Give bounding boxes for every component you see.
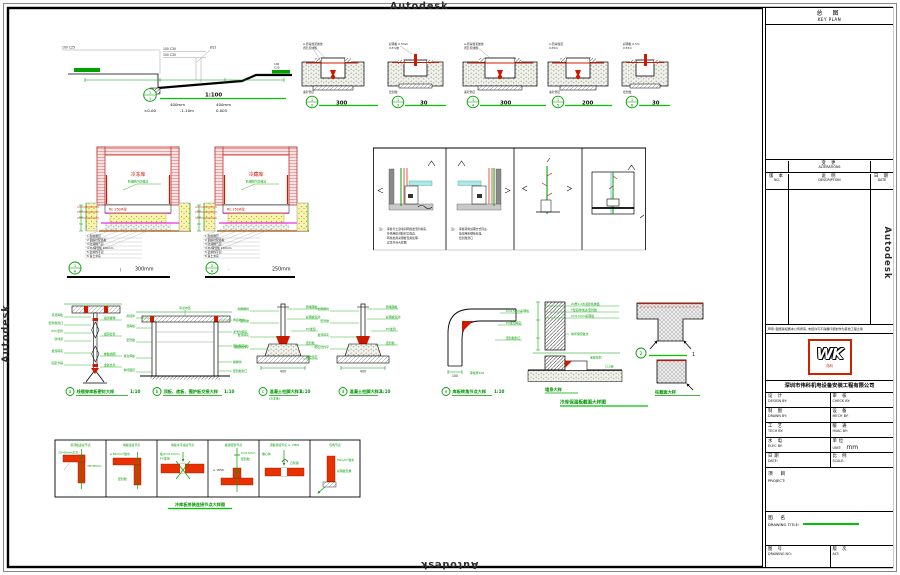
annotation: 防潮隔汽层做法 xyxy=(246,178,266,183)
grid-row: 制 图DRAWN BY: 设 备MECH BY: xyxy=(766,408,893,423)
annotation: δ=0.5mm彩钢板 xyxy=(571,313,594,318)
annotation: 吊挂件 xyxy=(126,313,135,318)
company-name: 深圳市伟科机电设备安装工程有限公司 xyxy=(766,381,893,393)
cell-header: 吊顶板连接节点 xyxy=(70,442,90,447)
detail-caption: 墙身大样 xyxy=(545,386,563,393)
section-marker-side: 1 xyxy=(692,352,695,358)
annotation: 踢脚线 xyxy=(233,359,242,364)
scale-label: 30 xyxy=(652,101,660,107)
alterations-desc-cell xyxy=(789,190,870,324)
watermark-left: Autodesk xyxy=(1,304,12,364)
section-marker: 2 xyxy=(640,351,643,357)
annotation: 地脚螺栓 xyxy=(237,306,249,311)
drawing-sheet: 100 C25 100 C30 100 C30 Ø12 100 C20 1 1 … xyxy=(0,0,900,575)
detail-caption: 混凝土柱脚大样1 xyxy=(270,388,302,395)
annotation: 密封胶 xyxy=(389,90,398,94)
annotation: δ=0.5mm彩钢板 xyxy=(506,308,529,313)
dimension: 250mm xyxy=(272,267,291,273)
cold-room-section-1: 冷冻库 防潮隔汽层做法 RC 250#砼 1 耐磨面层 2 钢筋砼配筋板 3 防… xyxy=(67,147,191,277)
detail-caption: 混凝土柱脚大样2 xyxy=(350,388,382,395)
company-logo: WK 伟科 xyxy=(808,339,852,375)
annotation: 0.55m xyxy=(623,46,632,50)
alt-no-en: ALT: xyxy=(833,552,892,556)
date-en: DATE xyxy=(871,179,893,183)
label-en: SCALE: xyxy=(833,459,892,463)
annotation: 细石砼找平 xyxy=(235,344,250,349)
detail-bubble: 2 xyxy=(311,103,313,107)
title-block-inner: 总 图 KEY PLAN 变 更 ALTERATIONS 版 本 NO. 说 明… xyxy=(765,8,893,567)
drawing-title-cell: 图 名 DRAWING TITLE: xyxy=(766,512,893,546)
detail-caption: 柱截面大样 xyxy=(655,389,677,396)
scale-label: 300 xyxy=(500,101,512,107)
drawing-no-en: DRAWING NO: xyxy=(768,552,828,556)
copyright-notice: 声明: 图纸版权属本公司所有, 未经许可不得翻印复制作为其他工程之用 xyxy=(766,325,893,334)
keyplan-title-cn: 总 图 xyxy=(766,10,893,17)
level: -1.10m xyxy=(180,108,194,113)
alterations-header: 变 更 ALTERATIONS xyxy=(766,160,893,173)
col-no: 版 本 NO. xyxy=(766,174,789,189)
detail-bubble: 1 xyxy=(397,98,399,102)
detail-caption: 库板转角节点大样 xyxy=(453,388,487,395)
annotation: 密封胶 xyxy=(623,90,632,94)
annotation: 彩钢板包边 xyxy=(386,314,401,319)
logo-text: WK xyxy=(816,347,842,362)
detail-e-panel-corner: δ=0.5mm彩钢板 PU发泡填实 密封胶封口 100 库板厚100 e 库板转… xyxy=(442,308,529,396)
annotation: 顶库板 xyxy=(126,323,135,328)
detail-caption: 线缆穿库板密封大样 xyxy=(77,388,116,395)
no-en: NO. xyxy=(766,179,788,183)
detail-scale: 1:10 xyxy=(380,389,391,394)
annotation: 素砼垫层 xyxy=(590,355,602,360)
trench-detail-1: A-沥青胶泥嵌缝 闭孔泡沫板 素砼垫层 1 2 300 xyxy=(302,42,378,108)
wall-section-detail: 20厚1:2水泥砂浆抹面 T型铝材收边/密封胶 δ=0.5mm彩钢板 地坪保温做… xyxy=(528,301,622,393)
annotation: 0.5%坡 xyxy=(389,46,399,50)
annotation: 板(δ=0.5mm) xyxy=(160,451,180,456)
col-description: 说 明 DESCRIPTION xyxy=(789,174,870,189)
annotation: 防潮隔汽层做法 xyxy=(128,178,148,183)
annotation: ø 50m/m²胶水 xyxy=(110,451,130,456)
trench-detail-4: A-沥青胶泥 0.55m 素砼垫层 1 5 200 xyxy=(548,42,612,108)
tech-by-cell: 工 艺TECH BY: xyxy=(766,423,830,437)
layer-note: 6 素土夯实 xyxy=(87,254,101,258)
label-en: UNIT: xyxy=(833,446,842,450)
annotation: 库板厚100 xyxy=(470,370,484,375)
alterations-column-heads: 版 本 NO. 说 明 DESCRIPTION 日 期 DATE xyxy=(766,173,893,190)
detail-bubble: 1 xyxy=(149,91,151,95)
detail-letter: d xyxy=(342,389,345,394)
unit-cell: 单位UNIT:mm xyxy=(830,438,894,452)
date-cell: 日期DATE: xyxy=(766,453,830,467)
annotation: 墙身库板 xyxy=(123,353,135,358)
annotation: 密封胶 xyxy=(306,340,315,345)
level: 0.005 xyxy=(216,108,228,113)
check-by-cell: 审 核CHECK BY: xyxy=(830,393,894,407)
annotation: 地坪面层 xyxy=(123,367,135,372)
annotation: 锁紧螺母 xyxy=(104,315,116,320)
trench-detail-3: A-沥青胶泥嵌缝 闭孔泡沫板 素砼垫层 1 4 300 xyxy=(463,42,546,108)
elec-by-cell: 水 电ELEC BY: xyxy=(766,438,830,452)
ramp-section-detail: 100 C25 100 C30 100 C30 Ø12 100 C20 1 1 … xyxy=(62,45,292,114)
note-line: 转角处用彩钢板包角处理, xyxy=(387,236,419,240)
company-logo-row: WK 伟科 xyxy=(766,334,893,381)
label-en: DESIGN BY: xyxy=(768,399,828,403)
grid-row: 工 艺TECH BY: 暖 通HVAC BY: xyxy=(766,423,893,438)
col-date: 日 期 DATE xyxy=(870,174,893,189)
detail-bubble: 1 xyxy=(311,98,313,102)
annotation: 穿线束 xyxy=(54,336,63,341)
alterations-rows xyxy=(766,190,893,325)
annotation: C20 xyxy=(274,66,280,70)
annotation: 密封胶封口 xyxy=(506,335,521,340)
project-cell: 项 目 PROJECT: xyxy=(766,468,893,512)
annotation: 密封胶封口 xyxy=(49,320,64,325)
wall-junction-panels: 注: 库板与土建墙间隙用发泡剂填实, 外侧用密封胶封口收边, 转角处用彩钢板包角… xyxy=(373,148,646,250)
trench-detail-5: 彩钢板 0.5m 0.55m 密封胶 1 6 30 xyxy=(622,42,670,108)
dimension: 400 xyxy=(360,370,366,374)
grid-row: 日期DATE: 比 例SCALE: xyxy=(766,453,893,468)
label-en: HVAC BY: xyxy=(833,429,892,433)
room-name: 冷冻库 xyxy=(130,171,145,178)
dimension: 400mm xyxy=(216,102,231,107)
annotation: Ø12 xyxy=(210,45,216,50)
level: ±0.00 xyxy=(144,108,156,113)
annotation: 地坪保温做法 xyxy=(571,331,588,336)
alterations-header-left xyxy=(766,161,789,172)
project-cn: 项 目 xyxy=(768,470,891,477)
keyplan-header: 总 图 KEY PLAN xyxy=(766,8,893,25)
annotation: 38*38mm xyxy=(87,464,102,468)
annotation: 密封胶 xyxy=(118,476,127,481)
annotation: 发泡填实 xyxy=(317,332,329,337)
detail-b-panel-junction: 吊挂件 顶库板 密封胶 墙身库板 地坪面层 角铝收边 发泡剂填实 聚氨酯芯材 踢… xyxy=(123,305,247,396)
annotation: 100 C30 xyxy=(163,47,176,51)
drawing-no-row: 图 号DRAWING NO: 版 次ALT: xyxy=(766,546,893,567)
annotation: 密封胶 xyxy=(241,456,250,461)
watermark-bottom: Autodesk xyxy=(420,559,478,570)
note-line: 库板转角处理方式同左, xyxy=(459,227,488,231)
detail-scale: 1:10 xyxy=(494,389,505,394)
label-en: DRAWN BY: xyxy=(768,414,828,418)
personnel-grid: 设 计DESIGN BY: 审 核CHECK BY: 制 图DRAWN BY: … xyxy=(766,393,893,468)
annotation: RC 250#砼 xyxy=(227,207,246,212)
drawing-title-en: DRAWING TITLE: xyxy=(768,522,799,527)
note-line: 密封胶封口 xyxy=(459,236,473,240)
t-section-detail: 2 1 柱截面大样 冷库保温板截面大样图 xyxy=(560,303,703,406)
trench-detail-2: 彩钢板 0.5mm 0.5%坡 密封胶 1 3 30 xyxy=(388,42,446,108)
scale-label: 30 xyxy=(420,101,428,107)
watermark-top: Autodesk xyxy=(390,1,448,12)
alterations-no-cell xyxy=(766,190,789,324)
dim-separator: - xyxy=(228,267,230,272)
detail-letter: b xyxy=(156,389,159,394)
dimension: 400mm xyxy=(170,102,185,107)
alt-no-cell: 版 次ALT: xyxy=(830,546,894,567)
cell-header: 板缝密封节点 xyxy=(225,442,242,447)
hvac-by-cell: 暖 通HVAC BY: xyxy=(830,423,894,437)
annotation: 橡胶挡圈 xyxy=(104,351,116,356)
title-block: 总 图 KEY PLAN 变 更 ALTERATIONS 版 本 NO. 说 明… xyxy=(762,8,893,567)
note-line: 库板与土建墙间隙用发泡剂填实, xyxy=(387,227,427,231)
annotation: RC 250#砼 xyxy=(109,207,128,212)
annotation: 30*40mm木方 xyxy=(58,449,78,454)
annotation: 彩钢板包角 xyxy=(337,468,352,473)
annotation: 发泡填实 xyxy=(237,332,249,337)
dimension: 100 xyxy=(452,374,458,378)
detail-subcaption: (冷冻库) xyxy=(269,396,280,401)
detail-scale: 1:10 xyxy=(224,389,235,394)
cell-header: 顶板吊挂节点 A. VIEW xyxy=(270,442,300,447)
annotation: 100 C25 xyxy=(62,46,75,50)
detail-scale: 1:10 xyxy=(300,389,311,394)
annotation: 吊顶库板 xyxy=(51,312,63,317)
annotation: 细石砼找平 xyxy=(315,344,330,349)
dimension: 300mm xyxy=(135,267,154,273)
dim-separator: | xyxy=(120,267,121,272)
project-en: PROJECT: xyxy=(768,478,891,483)
label-en: CHECK BY: xyxy=(833,399,892,403)
cell-header: 墙板水平连接节点 xyxy=(171,442,194,447)
label-en: DATE: xyxy=(768,459,828,463)
desc-en: DESCRIPTION xyxy=(789,179,870,183)
annotation: 发泡填实 xyxy=(51,348,63,353)
keyplan-area xyxy=(766,25,893,160)
logo-subtext: 伟科 xyxy=(826,363,833,368)
annotation: 素砼垫层 xyxy=(464,90,475,94)
layer-note: 6 素土夯实 xyxy=(205,254,219,258)
annotation: 金属支架 xyxy=(104,362,116,367)
cell-header: 墙板连接节点 xyxy=(123,442,140,447)
panel-joint-table: 吊顶板连接节点 墙板连接节点 墙板水平连接节点 板缝密封节点 顶板吊挂节点 A.… xyxy=(55,440,360,509)
annotation: T型铝材收边/密封胶 xyxy=(570,307,597,312)
keyplan-title-en: KEY PLAN xyxy=(766,17,893,22)
detail-scale: 1:10 xyxy=(130,389,141,394)
alterations-title: 变 更 ALTERATIONS xyxy=(789,161,870,172)
annotation: PU发泡 xyxy=(386,326,396,331)
cell-header: 包角节点 xyxy=(329,442,341,447)
label-en: MECH BY: xyxy=(833,414,892,418)
annotation: 闭孔泡沫板 xyxy=(464,46,478,50)
annotation: A. VIEW xyxy=(213,468,224,472)
detail-bubble: 2 xyxy=(211,264,213,268)
annotation: 彩钢板包边 xyxy=(306,314,321,319)
room-name: 冷藏库 xyxy=(248,171,263,178)
annotation: 预埋钢板 xyxy=(306,304,318,309)
annotation: 闭孔泡沫板 xyxy=(303,46,317,50)
annotation: 地脚螺栓 xyxy=(317,306,329,311)
detail-caption: 顶板、底板、围护板交接大样 xyxy=(164,388,219,395)
annotation: 镀锌套管 xyxy=(104,331,116,336)
grid-row: 设 计DESIGN BY: 审 核CHECK BY: xyxy=(766,393,893,408)
annotation: 密封胶封口 xyxy=(233,368,248,373)
annotation: δ=0.5mm xyxy=(241,451,256,455)
annotation: PU发泡填实 xyxy=(506,320,522,325)
annotation: 密封胶 xyxy=(320,318,329,323)
watermark-right: Autodesk xyxy=(882,223,892,283)
annotation: 素砼垫层 xyxy=(549,90,560,94)
detail-bubble: 1 xyxy=(74,264,76,268)
dimension: 400 xyxy=(280,370,286,374)
detail-d-column-base-2: 400 地脚螺栓 密封胶 发泡填实 细石砼找平 预埋钢板 彩钢板包边 PU发泡 … xyxy=(315,304,401,396)
annotation: 100 C30 xyxy=(163,53,176,57)
annotation: 凸轮锁 xyxy=(290,460,299,465)
table-caption: 冷库板拼装连接节点大样图 xyxy=(175,501,225,508)
detail-caption: 冷库保温板截面大样图 xyxy=(560,399,606,406)
note-line: 外侧用密封胶封口收边, xyxy=(387,232,416,236)
scale-label: 1:100 xyxy=(205,93,222,99)
annotation: PU发泡 xyxy=(160,456,170,461)
grid-row: 水 电ELEC BY: 单位UNIT:mm xyxy=(766,438,893,453)
annotation: 密封胶 xyxy=(126,337,135,342)
detail-bubble: 1 xyxy=(472,98,474,102)
annotation: 素砼垫层 xyxy=(306,354,318,359)
detail-bubble: 1 xyxy=(557,98,559,102)
drawing-title-cn: 图 名 xyxy=(768,514,891,521)
mech-by-cell: 设 备MECH BY: xyxy=(830,408,894,422)
annotation: 偏心钩 xyxy=(262,451,271,456)
note-label: 注: xyxy=(451,226,455,231)
detail-bubble: 1 xyxy=(631,98,633,102)
annotation: PU发泡 xyxy=(306,326,316,331)
detail-c-column-base-1: 400 地脚螺栓 密封胶 发泡填实 细石砼找平 预埋钢板 彩钢板包边 PU发泡 … xyxy=(235,304,321,401)
annotation: C15砼 xyxy=(605,364,614,369)
annotation: 吊点布置 xyxy=(179,305,191,310)
annotation: 素砼垫层 xyxy=(303,90,314,94)
annotation: 0.55m xyxy=(549,46,558,50)
drawing-title-line xyxy=(803,523,859,525)
alterations-header-right xyxy=(870,161,893,172)
scale-label: 200 xyxy=(582,101,594,107)
annotation: 20厚1:2水泥砂浆抹面 xyxy=(571,301,600,306)
note-label: 注: xyxy=(379,226,383,231)
annotation: PVC套管 xyxy=(51,328,63,333)
drawing-title-en-row: DRAWING TITLE: xyxy=(768,522,891,527)
annotation: 密封胶 xyxy=(240,318,249,323)
annotation: 50m/m²胶水 xyxy=(337,457,354,462)
note-line: 角部用彩钢板包角, xyxy=(459,232,482,236)
design-by-cell: 设 计DESIGN BY: xyxy=(766,393,830,407)
label-en: ELEC BY: xyxy=(768,444,828,448)
annotation: 固定卡箍 xyxy=(51,360,63,365)
annotation: 预埋钢板 xyxy=(386,304,398,309)
drawn-by-cell: 制 图DRAWN BY: xyxy=(766,408,830,422)
scale-cell: 比 例SCALE: xyxy=(830,453,894,467)
detail-letter: c xyxy=(262,389,264,394)
unit-value: mm xyxy=(846,444,858,451)
annotation: 密封胶 xyxy=(386,340,395,345)
alterations-en: ALTERATIONS xyxy=(789,166,870,170)
note-line: 详见节点大样图 xyxy=(387,241,407,245)
detail-bubble: 1 xyxy=(149,97,151,101)
scale-label: 300 xyxy=(336,101,348,107)
cold-room-section-2: 冷藏库 防潮隔汽层做法 RC 250#砼 1 耐磨面层 2 钢筋砼配筋板 3 防… xyxy=(195,147,309,277)
drawing-no-cell: 图 号DRAWING NO: xyxy=(766,546,830,567)
label-en: TECH BY: xyxy=(768,429,828,433)
